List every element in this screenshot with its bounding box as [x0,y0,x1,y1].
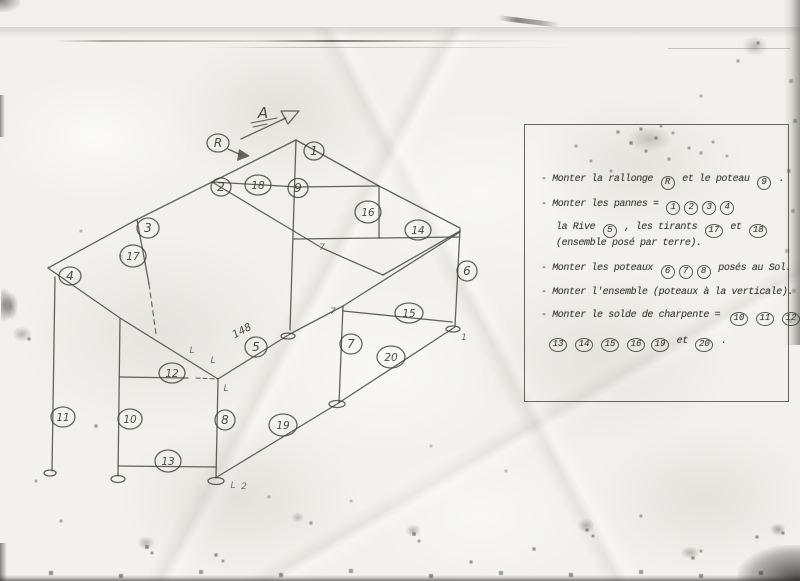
direction-label: A [257,104,268,122]
circled-part-number: 10 [730,312,748,326]
circled-part-number: 19 [651,338,669,352]
circled-part-number: 9 [757,176,771,190]
node-circle-5: 5 [245,337,267,357]
legend-text: , les tirants [619,222,703,233]
circled-part-number: 15 [601,338,619,352]
node-label: 11 [56,412,69,424]
node-circle-9: 9 [288,179,308,198]
tirant-17-dashed-line [149,284,156,334]
rallonge-arrow-head [237,149,250,161]
circled-part-number: R [661,176,675,190]
legend-text: et [725,222,747,233]
post-10-line [118,319,120,476]
node-circle-11: 11 [51,407,75,427]
node-label: 6 [463,264,471,278]
node-circle-8: 8 [215,410,235,430]
node-circle-1: 1 [304,142,324,160]
legend-text: - Monter les pannes = [541,199,664,210]
legend-text: et le poteau [677,174,755,185]
tick-mark: L [230,481,235,491]
node-label: 17 [126,251,140,263]
node-circle-R: R [207,134,229,152]
node-label: 18 [251,180,265,192]
post-11-foot [44,470,56,476]
node-label: 20 [384,352,398,364]
node-label: 19 [276,420,290,432]
direction-arrow-head [281,111,299,124]
node-circle-19: 19 [269,414,297,436]
legend-text: (ensemble posé par terre). [556,238,702,249]
direction-arrow-A: A [241,104,299,139]
roof-edge-left-line [48,140,296,268]
roof-edge-right-line [296,140,460,228]
legend-text: - Monter l'ensemble (poteaux à la vertic… [541,287,793,298]
part-number-circles: R 1 2 18 9 16 14 6 3 17 4 11 10 12 8 13 … [51,134,477,472]
legend-text: . [773,174,784,185]
node-circle-10: 10 [118,409,142,429]
node-label: 14 [411,225,424,237]
circled-part-number: 18 [749,224,767,238]
legend-line-3: la Rive 5 , les tirants 17 et 18 [556,220,769,238]
circled-part-number: 2 [684,201,698,215]
node-label: 3 [144,221,152,235]
legend-line-1: - Monter la rallonge R et le poteau 9 . [541,172,784,190]
node-circle-13: 13 [155,450,181,472]
legend-text: la Rive [556,222,601,233]
node-circle-15: 15 [395,303,423,323]
circled-part-number: 1 [666,201,680,215]
legend-line-2: - Monter les pannes = 1234 [541,197,736,215]
tick-mark: 1 [461,333,467,343]
circled-part-number: 12 [782,312,800,326]
node-label: 7 [347,337,355,351]
node-label: 16 [361,207,375,219]
tick-mark: L [189,346,194,356]
node-circle-17: 17 [120,245,146,267]
rail-15-line [343,311,452,322]
node-circle-7: 7 [340,334,362,354]
node-label: 13 [161,456,174,468]
circled-part-number: 11 [756,312,774,326]
node-label: 12 [165,368,179,380]
node-label: 9 [294,181,302,195]
legend-line-6: - Monter l'ensemble (poteaux à la vertic… [541,285,793,300]
post-11-line [52,277,55,471]
legend-text: et [671,336,693,347]
node-label: 4 [66,269,74,283]
post-8-line [216,380,218,478]
node-circle-16: 16 [355,201,381,223]
circled-part-number: 16 [627,338,645,352]
legend-text: - Monter la rallonge [541,174,659,185]
circled-part-number: 6 [661,265,675,279]
node-circle-4: 4 [59,267,81,285]
node-circle-12: 12 [159,363,185,383]
tick-mark: L [223,384,228,394]
pencil-tick-marks: 7 7 L L L L 2 1 [189,243,466,492]
node-label: R [214,136,222,150]
purlin-14-line [294,237,459,239]
circled-part-number: 20 [695,338,713,352]
legend-text: - Monter le solde de charpente = [541,310,726,321]
legend-line-4: (ensemble posé par terre). [556,236,702,251]
circled-part-number: 14 [575,338,593,352]
legend-text: . [715,336,726,347]
circled-part-number: 7 [679,265,693,279]
tick-mark: L [210,356,215,366]
legend-text: - Monter les poteaux [541,263,659,274]
tick-mark: 7 [330,307,336,317]
legend-line-8: 1314151619 et 20 . [545,334,727,352]
rallonge-pointer [228,149,250,161]
circled-part-number: 13 [549,338,567,352]
node-label: 1 [310,144,318,158]
tick-mark: 2 [241,482,247,492]
node-label: 10 [123,414,137,426]
node-circle-6: 6 [457,261,477,281]
circled-part-number: 3 [702,201,716,215]
tick-mark: 7 [319,243,325,253]
node-circle-3: 3 [137,218,159,238]
rail-12-dashed-line [196,378,218,379]
node-circle-2: 2 [211,178,231,196]
direction-label-underline [253,124,267,127]
node-label: 2 [217,180,225,194]
node-circle-20: 20 [377,346,405,368]
circled-part-number: 8 [697,265,711,279]
scanned-page: A 148 R 1 2 18 9 16 14 6 3 17 4 11 10 12… [0,0,800,581]
circled-part-number: 4 [720,201,734,215]
post-9-line [290,140,296,330]
node-label: 5 [252,340,260,354]
node-label: 15 [402,308,416,320]
node-label: 8 [221,413,229,427]
legend-text: posés au Sol. [713,263,791,274]
legend-line-7: - Monter le solde de charpente = 101112 [541,308,800,326]
post-7-line [339,306,343,403]
circled-part-number: 17 [705,224,723,238]
legend-line-5: - Monter les poteaux 678 posés au Sol. [541,261,791,279]
ridge-purlin-line [212,182,383,275]
